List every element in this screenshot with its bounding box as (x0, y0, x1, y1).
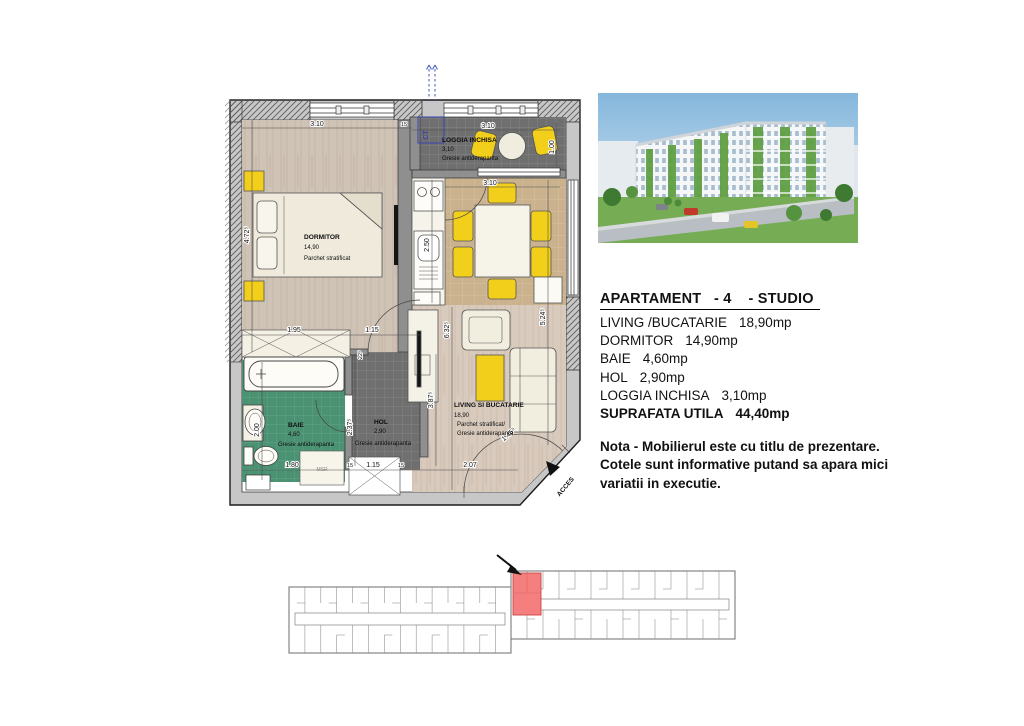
building-keyplan (283, 553, 743, 663)
svg-text:6.32⁵: 6.32⁵ (444, 322, 451, 339)
cooktop-icon (414, 181, 443, 211)
detail-row: BAIE4,60mp (600, 350, 900, 368)
svg-text:22⁵: 22⁵ (357, 351, 364, 360)
toilet (244, 447, 278, 466)
tv-bedroom (394, 205, 398, 265)
note-text: Nota - Mobilierul este cu titlu de preze… (600, 438, 900, 493)
detail-row: LIVING /BUCATARIE18,90mp (600, 314, 900, 332)
gray-car (656, 204, 668, 210)
note-line: Cotele sunt informative putand sa apara … (600, 456, 900, 474)
svg-text:Parchet stratificat: Parchet stratificat (304, 256, 351, 262)
dining-table (475, 205, 530, 277)
tv-cabinet (408, 310, 438, 402)
svg-text:3,10: 3,10 (442, 147, 454, 153)
total-area-row: SUPRAFATA UTILA44,40mp (600, 405, 900, 423)
svg-text:1.00: 1.00 (549, 140, 556, 154)
ct-label: CT (423, 130, 430, 140)
acces-label: ACCES (556, 476, 576, 498)
bathtub (244, 357, 344, 391)
plan-sheet: MSR (0, 0, 1024, 726)
svg-text:3.10: 3.10 (481, 123, 495, 130)
room-label-dormitor: DORMITOR (304, 234, 340, 241)
svg-text:1.15: 1.15 (366, 462, 380, 469)
washing-machine: MSR (300, 451, 344, 485)
room-label-loggia: LOGGIA INCHISA (442, 137, 497, 144)
svg-text:5.24⁵: 5.24⁵ (540, 309, 547, 326)
sofa (510, 348, 556, 432)
svg-text:3.10: 3.10 (483, 180, 497, 187)
svg-text:Gresie antiderapanta: Gresie antiderapanta (278, 442, 335, 448)
room-label-baie: BAIE (288, 422, 304, 429)
svg-text:2.07: 2.07 (463, 462, 477, 469)
detail-row: HOL2,90mp (600, 369, 900, 387)
svg-text:2.00: 2.00 (254, 423, 261, 437)
svg-text:1.95: 1.95 (287, 327, 301, 334)
apartment-details: APARTAMENT - 4 - STUDIO LIVING /BUCATARI… (600, 290, 900, 423)
svg-text:18,90: 18,90 (454, 413, 470, 419)
entrance: ACCES (546, 461, 576, 498)
svg-text:3.10: 3.10 (310, 121, 324, 128)
nightstand (244, 281, 264, 301)
building-photo (598, 93, 858, 243)
svg-text:2.37⁵: 2.37⁵ (347, 419, 354, 436)
wardrobe (242, 330, 350, 357)
coffee-table (476, 355, 504, 401)
armchair (462, 310, 510, 350)
svg-text:4,60: 4,60 (288, 432, 300, 438)
svg-text:Gresie antiderapanta: Gresie antiderapanta (457, 431, 514, 437)
svg-text:Gresie antiderapanta: Gresie antiderapanta (355, 441, 412, 447)
keyplan-left-wing (289, 587, 511, 653)
note-line: Nota - Mobilierul este cu titlu de preze… (600, 438, 900, 456)
red-car (684, 208, 698, 215)
svg-text:1.80: 1.80 (285, 462, 299, 469)
yellow-car (744, 221, 758, 228)
svg-text:2,90: 2,90 (374, 429, 386, 435)
floor-plan: MSR (222, 55, 592, 510)
svg-text:Parchet stratificat/: Parchet stratificat/ (457, 422, 505, 428)
detail-row: LOGGIA INCHISA3,10mp (600, 387, 900, 405)
svg-text:15: 15 (347, 463, 353, 469)
svg-text:3.87⁵: 3.87⁵ (428, 392, 435, 409)
svg-text:2.50: 2.50 (424, 238, 431, 252)
svg-text:1.15: 1.15 (365, 327, 379, 334)
apartment-title: APARTAMENT - 4 - STUDIO (600, 291, 820, 310)
room-label-living: LIVING SI BUCATARIE (454, 402, 524, 409)
svg-text:14,90: 14,90 (304, 245, 320, 251)
tv-living (417, 331, 421, 387)
keyplan-arrow-icon (497, 555, 522, 575)
room-label-hol: HOL (374, 419, 388, 426)
nightstand (244, 171, 264, 191)
round-table (499, 133, 526, 160)
white-van (712, 213, 729, 222)
note-line: variatii in executie. (600, 475, 900, 493)
svg-text:Gresie antiderapanta: Gresie antiderapanta (442, 156, 499, 162)
flue-icon (427, 65, 438, 100)
svg-text:15: 15 (401, 122, 407, 128)
svg-text:4.72⁵: 4.72⁵ (244, 227, 251, 244)
detail-row: DORMITOR14,90mp (600, 332, 900, 350)
svg-text:15: 15 (398, 463, 404, 469)
